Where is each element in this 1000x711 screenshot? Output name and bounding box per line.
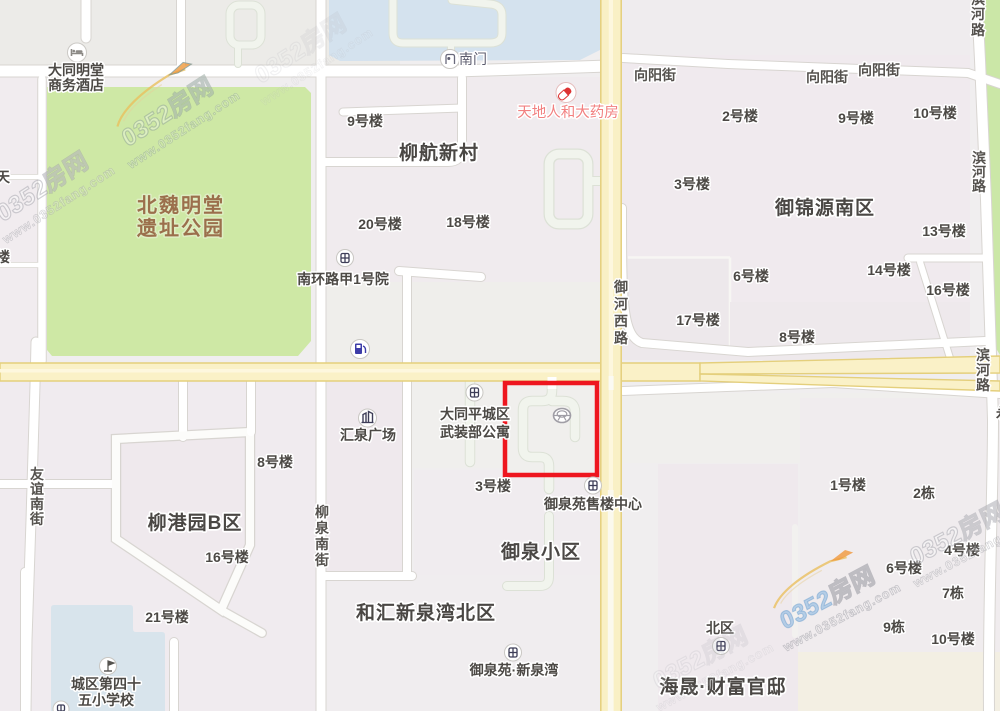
svg-text:柳港园B区: 柳港园B区 [148,511,243,534]
svg-text:南: 南 [315,536,329,552]
svg-text:16号楼: 16号楼 [926,282,970,298]
svg-text:御泉小区: 御泉小区 [500,540,581,563]
svg-text:河: 河 [971,6,985,22]
svg-text:1号楼: 1号楼 [830,477,866,493]
svg-text:8号楼: 8号楼 [779,329,815,345]
svg-text:6号楼: 6号楼 [733,268,769,284]
svg-text:路: 路 [972,178,987,194]
svg-text:御锦源南区: 御锦源南区 [774,196,875,219]
svg-text:御泉苑·新泉湾: 御泉苑·新泉湾 [469,662,559,678]
svg-text:9号楼: 9号楼 [347,113,383,129]
svg-text:9号楼: 9号楼 [838,110,874,126]
svg-text:3号楼: 3号楼 [674,176,710,192]
svg-text:滨: 滨 [976,347,990,363]
svg-text:14号楼: 14号楼 [867,262,911,278]
svg-text:路: 路 [976,377,991,393]
svg-text:向阳街: 向阳街 [634,67,676,83]
svg-text:楼: 楼 [0,249,10,265]
svg-text:柳: 柳 [315,504,329,520]
svg-text:河: 河 [976,362,990,378]
svg-text:西: 西 [614,313,628,329]
svg-text:谊: 谊 [30,481,44,497]
svg-text:10号楼: 10号楼 [931,631,975,647]
svg-text:9栋: 9栋 [883,619,905,635]
svg-text:街: 街 [29,511,44,527]
svg-text:2号楼: 2号楼 [722,108,758,124]
svg-text:10号楼: 10号楼 [913,105,957,121]
svg-text:7栋: 7栋 [942,585,964,601]
svg-text:御泉苑售楼中心: 御泉苑售楼中心 [543,496,642,512]
svg-text:21号楼: 21号楼 [145,609,189,625]
svg-text:13号楼: 13号楼 [922,223,966,239]
svg-text:路: 路 [614,330,629,346]
svg-text:五小学校: 五小学校 [78,692,135,708]
svg-text:城区第四十: 城区第四十 [71,676,141,692]
svg-text:友: 友 [30,466,44,482]
svg-text:南环路甲1号院: 南环路甲1号院 [297,271,389,287]
svg-text:8号楼: 8号楼 [257,454,293,470]
svg-text:向阳街: 向阳街 [858,62,900,78]
svg-text:18号楼: 18号楼 [446,214,490,230]
svg-text:2栋: 2栋 [913,485,935,501]
svg-text:遗址公园: 遗址公园 [136,217,225,240]
svg-text:16号楼: 16号楼 [205,549,249,565]
svg-text:北魏明堂: 北魏明堂 [137,193,225,217]
svg-text:向阳街: 向阳街 [806,69,848,85]
svg-text:天: 天 [0,169,11,185]
svg-text:17号楼: 17号楼 [676,312,720,328]
svg-text:汇泉广场: 汇泉广场 [340,427,396,443]
svg-text:武装部公寓: 武装部公寓 [440,424,510,440]
svg-text:路: 路 [971,22,986,38]
svg-text:泉: 泉 [315,520,330,536]
svg-text:柳航新村: 柳航新村 [399,141,479,164]
svg-text:商务酒店: 商务酒店 [48,77,104,93]
svg-text:街: 街 [314,552,329,568]
svg-text:和汇新泉湾北区: 和汇新泉湾北区 [356,601,496,624]
svg-text:天地人和大药房: 天地人和大药房 [517,104,619,121]
svg-text:3号楼: 3号楼 [475,478,511,494]
svg-text:南: 南 [30,496,44,512]
svg-text:大同明堂: 大同明堂 [48,62,104,78]
svg-text:大同平城区: 大同平城区 [440,406,510,422]
svg-text:河: 河 [614,296,628,312]
svg-text:20号楼: 20号楼 [358,216,402,232]
svg-text:御: 御 [613,279,628,295]
svg-text:南门: 南门 [459,51,487,67]
svg-text:永: 永 [995,405,1000,421]
